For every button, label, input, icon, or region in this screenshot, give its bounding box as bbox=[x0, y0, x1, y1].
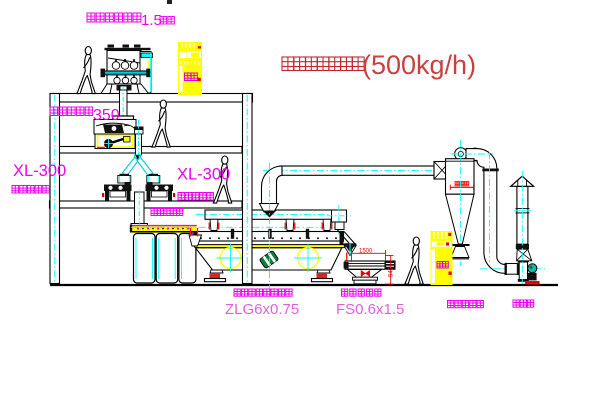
svg-text:(500kg/h): (500kg/h) bbox=[362, 50, 476, 80]
svg-text:350: 350 bbox=[93, 107, 120, 124]
svg-text:FS0.6x1.5: FS0.6x1.5 bbox=[336, 301, 404, 318]
svg-text:XL-300: XL-300 bbox=[13, 162, 66, 180]
svg-text:540: 540 bbox=[389, 266, 395, 277]
svg-text:XL-300: XL-300 bbox=[177, 166, 230, 184]
svg-text:1.5: 1.5 bbox=[141, 12, 162, 29]
svg-text:1500: 1500 bbox=[359, 249, 373, 255]
svg-text:ZLG6x0.75: ZLG6x0.75 bbox=[225, 301, 299, 318]
